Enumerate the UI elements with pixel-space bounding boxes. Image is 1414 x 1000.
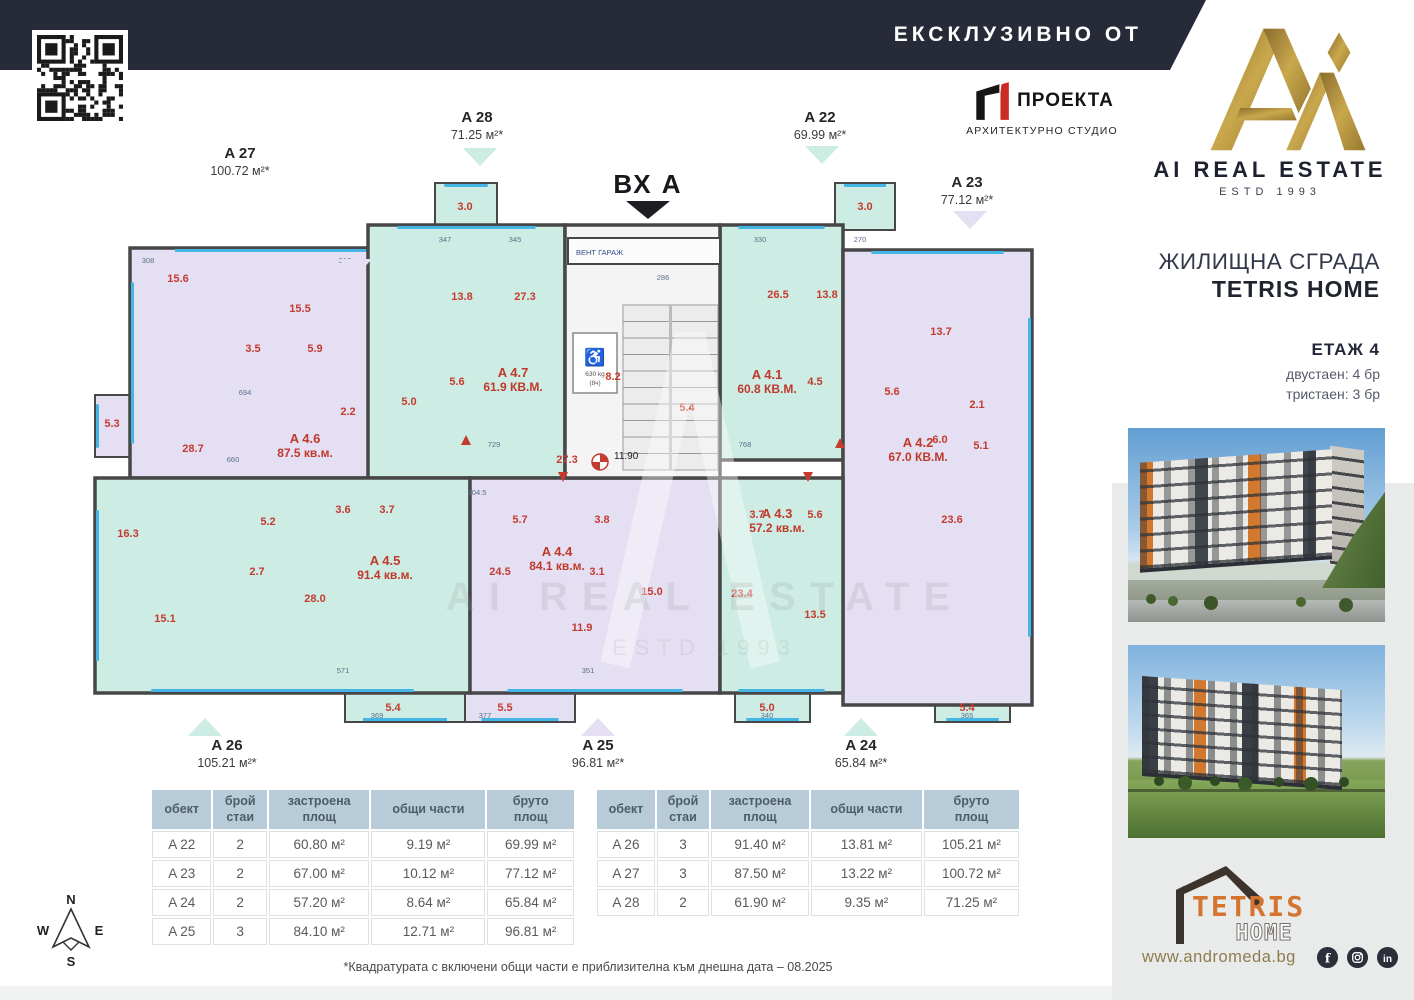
table-cell: 10.12 м² xyxy=(371,860,485,887)
room-size-label: 3.7 xyxy=(379,504,394,516)
room-size-label: 3.0 xyxy=(457,201,472,213)
table-cell: 8.64 м² xyxy=(371,889,485,916)
entrance-label: ВХ А xyxy=(613,169,682,199)
room-size-label: 5.2 xyxy=(260,516,275,528)
callout-unit: A 25 xyxy=(582,737,613,754)
table-cell: 2 xyxy=(213,860,267,887)
table-cell: 57.20 м² xyxy=(269,889,369,916)
room-size-label: 23.6 xyxy=(941,514,962,526)
table-cell: 77.12 м² xyxy=(487,860,574,887)
room-size-label: 3.7 xyxy=(749,509,764,521)
callout-unit: A 27 xyxy=(224,145,255,162)
dimension-label: 347 xyxy=(439,235,452,244)
callout-area: 65.84 м²* xyxy=(835,756,888,770)
room-size-label: 28.0 xyxy=(304,593,325,605)
dimension-label: 660 xyxy=(227,455,240,464)
svg-text:HOME: HOME xyxy=(1236,921,1293,946)
room-size-label: 5.6 xyxy=(807,509,822,521)
dimension-label: 729 xyxy=(488,440,501,449)
room-size-label: 5.4 xyxy=(385,702,401,714)
table-cell: A 22 xyxy=(152,831,211,858)
room-size-label: 5.5 xyxy=(497,702,512,714)
watermark-text: ESTD 1993 xyxy=(612,635,798,660)
room-size-label: 5.3 xyxy=(104,418,119,430)
room-size-label: 3.8 xyxy=(594,514,609,526)
callout-pointer xyxy=(581,718,615,736)
room-size-label: 5.1 xyxy=(973,440,988,452)
room-size-label: 3.6 xyxy=(335,504,350,516)
dimension-label: 308 xyxy=(142,256,155,265)
apartment-size: 61.9 КВ.М. xyxy=(483,380,542,394)
callout-pointer xyxy=(805,146,839,164)
callout-pointer xyxy=(188,718,222,736)
exclusive-banner-text: ЕКСКЛУЗИВНО ОТ xyxy=(894,0,1142,70)
callout-pointer xyxy=(953,211,987,229)
callout-unit: A 22 xyxy=(804,109,835,126)
website-link[interactable]: www.andromeda.bg xyxy=(1142,948,1296,967)
table-cell: 12.71 м² xyxy=(371,918,485,945)
tetris-home-logo: TETRIS HOME xyxy=(1168,860,1344,948)
apartment-number: A 4.7 xyxy=(498,365,529,380)
building-render-1 xyxy=(1128,428,1385,622)
room-size-label: 8.2 xyxy=(605,371,620,383)
wheelchair-icon: ♿ xyxy=(584,347,605,367)
table-cell: 61.90 м² xyxy=(711,889,809,916)
dimension-label: 377 xyxy=(479,711,492,720)
brand-title: AI REAL ESTATE xyxy=(1136,157,1404,183)
dimension-label: 694 xyxy=(239,388,252,397)
table-cell: 65.84 м² xyxy=(487,889,574,916)
stat-three-room: тристаен: 3 бр xyxy=(1140,386,1380,402)
compass-rose: NWES xyxy=(36,893,106,971)
table-cell: A 23 xyxy=(152,860,211,887)
exclusive-banner: ЕКСКЛУЗИВНО ОТ xyxy=(0,0,1210,70)
room-size-label: 6.0 xyxy=(932,434,947,446)
apartment-number: A 4.4 xyxy=(542,544,573,559)
callout-area: 69.99 м²* xyxy=(794,128,847,142)
table-cell: 84.10 м² xyxy=(269,918,369,945)
apartment-area xyxy=(843,250,1032,705)
room-size-label: 27.3 xyxy=(556,454,577,466)
balcony-area xyxy=(345,693,465,722)
table-cell: A 24 xyxy=(152,889,211,916)
table-cell: A 25 xyxy=(152,918,211,945)
vent-label: ВЕНТ ГАРАЖ xyxy=(576,248,623,257)
table-cell: 60.80 м² xyxy=(269,831,369,858)
table-row: A 24257.20 м²8.64 м²65.84 м² xyxy=(152,889,574,916)
table-cell: 87.50 м² xyxy=(711,860,809,887)
apartment-number: A 4.3 xyxy=(762,506,793,521)
table-cell: 69.99 м² xyxy=(487,831,574,858)
apartment-size: 67.0 КВ.М. xyxy=(888,450,947,464)
room-size-label: 5.6 xyxy=(449,376,464,388)
room-size-label: 4.5 xyxy=(807,376,822,388)
compass-n: N xyxy=(66,893,75,907)
room-size-label: 5.9 xyxy=(307,343,322,355)
svg-text:in: in xyxy=(1383,954,1392,965)
table-cell: 13.81 м² xyxy=(811,831,922,858)
dimension-label: 351 xyxy=(582,666,595,675)
table-row: A 23267.00 м²10.12 м²77.12 м² xyxy=(152,860,574,887)
table-cell: 3 xyxy=(657,860,709,887)
stat-two-room: двустаен: 4 бр xyxy=(1140,366,1380,382)
callout-unit: A 28 xyxy=(461,109,492,126)
table-cell: 13.22 м² xyxy=(811,860,922,887)
svg-text:630 kg: 630 kg xyxy=(585,371,605,378)
column-header: бруто площ xyxy=(487,790,574,829)
building-name: TETRIS HOME xyxy=(1060,276,1380,303)
apartment-size: 91.4 кв.м. xyxy=(357,568,413,582)
brochure-page: ЕКСКЛУЗИВНО ОТ ПРОЕКТА АРХИТЕКТУРНО СТУД… xyxy=(0,0,1414,1000)
floor-label: ЕТАЖ 4 xyxy=(1180,340,1380,360)
facebook-icon[interactable]: f xyxy=(1316,946,1339,969)
table-cell: A 26 xyxy=(597,831,655,858)
callout-unit: A 26 xyxy=(211,737,242,754)
apartment-size: 84.1 кв.м. xyxy=(529,559,585,573)
room-size-label: 16.3 xyxy=(117,528,138,540)
building-title: ЖИЛИЩНА СГРАДА xyxy=(1060,249,1380,275)
table-row: A 22260.80 м²9.19 м²69.99 м² xyxy=(152,831,574,858)
footnote: *Квадратурата с включени общи части е пр… xyxy=(148,960,1028,974)
compass-e: E xyxy=(95,923,104,938)
callout-area: 96.81 м²* xyxy=(572,756,625,770)
dimension-label: 286 xyxy=(657,273,670,282)
table-cell: A 27 xyxy=(597,860,655,887)
table-cell: 9.19 м² xyxy=(371,831,485,858)
compass-w: W xyxy=(37,923,50,938)
room-size-label: 26.5 xyxy=(767,289,788,301)
entrance-arrow-icon xyxy=(626,201,670,219)
building-render-2 xyxy=(1128,645,1385,838)
apartment-number: A 4.2 xyxy=(903,435,934,450)
table-cell: 9.35 м² xyxy=(811,889,922,916)
room-size-label: 13.8 xyxy=(451,291,472,303)
footer-strip xyxy=(0,986,1112,1000)
callout-unit: A 23 xyxy=(951,174,982,191)
apartment-size: 60.8 КВ.М. xyxy=(737,382,796,396)
dimension-label: 365 xyxy=(961,711,974,720)
dimension-label: 571 xyxy=(337,666,350,675)
table-cell: 3 xyxy=(213,918,267,945)
dimension-label: 369 xyxy=(371,711,384,720)
callout-pointer xyxy=(463,148,497,166)
column-header: застроена площ xyxy=(269,790,369,829)
apartment-number: A 4.5 xyxy=(370,553,401,568)
watermark-text: AI REAL ESTATE xyxy=(446,575,964,619)
callout-area: 105.21 м²* xyxy=(197,756,256,770)
room-size-label: 15.6 xyxy=(167,273,188,285)
social-icons: f in xyxy=(1316,946,1399,969)
callout-pointer xyxy=(844,718,878,736)
column-header: обект xyxy=(152,790,211,829)
dimension-label: 345 xyxy=(509,235,522,244)
dimension-label: 340 xyxy=(761,711,774,720)
instagram-icon[interactable] xyxy=(1346,946,1369,969)
table-row: A 27387.50 м²13.22 м²100.72 м² xyxy=(597,860,1019,887)
column-header: брой стаи xyxy=(657,790,709,829)
table-row: A 26391.40 м²13.81 м²105.21 м² xyxy=(597,831,1019,858)
column-header: бруто площ xyxy=(924,790,1019,829)
apartment-size: 57.2 кв.м. xyxy=(749,521,805,535)
callout-area: 77.12 м²* xyxy=(941,193,994,207)
room-size-label: 2.7 xyxy=(249,566,264,578)
table-row: A 28261.90 м²9.35 м²71.25 м² xyxy=(597,889,1019,916)
table-cell: 3 xyxy=(657,831,709,858)
room-size-label: 3.0 xyxy=(857,201,872,213)
room-size-label: 15.5 xyxy=(289,303,310,315)
room-size-label: 11.9 xyxy=(572,622,593,634)
table-cell: 71.25 м² xyxy=(924,889,1019,916)
dimension-label: 304.5 xyxy=(468,488,487,497)
room-size-label: 5.0 xyxy=(401,396,416,408)
room-size-label: 3.5 xyxy=(245,343,260,355)
room-size-label: 15.1 xyxy=(154,613,175,625)
room-size-label: 27.3 xyxy=(514,291,535,303)
table-cell: 2 xyxy=(657,889,709,916)
room-size-label: 5.7 xyxy=(512,514,527,526)
column-header: обект xyxy=(597,790,655,829)
callout-area: 100.72 м²* xyxy=(210,164,269,178)
room-size-label: 28.7 xyxy=(182,443,203,455)
apartment-number: A 4.6 xyxy=(290,431,321,446)
table-cell: 105.21 м² xyxy=(924,831,1019,858)
callout-area: 71.25 м²* xyxy=(451,128,504,142)
dimension-label: 330 xyxy=(754,235,767,244)
linkedin-icon[interactable]: in xyxy=(1376,946,1399,969)
apartment-size: 87.5 кв.м. xyxy=(277,446,333,460)
column-header: общи части xyxy=(371,790,485,829)
table-cell: 96.81 м² xyxy=(487,918,574,945)
column-header: застроена площ xyxy=(711,790,809,829)
room-size-label: 2.2 xyxy=(340,406,355,418)
column-header: брой стаи xyxy=(213,790,267,829)
level-value: 11.90 xyxy=(614,451,639,462)
table-cell: 2 xyxy=(213,889,267,916)
area-table-2: обектброй стаизастроена площобщи частибр… xyxy=(595,788,1021,918)
apartment-area xyxy=(95,478,470,693)
apartment-number: A 4.1 xyxy=(752,367,783,382)
room-size-label: 13.8 xyxy=(816,289,837,301)
dimension-label: 768 xyxy=(739,440,752,449)
callout-unit: A 24 xyxy=(845,737,877,754)
table-cell: 91.40 м² xyxy=(711,831,809,858)
brand-estd: ESTD 1993 xyxy=(1136,186,1404,198)
column-header: общи части xyxy=(811,790,922,829)
svg-text:TETRIS: TETRIS xyxy=(1192,890,1305,923)
room-size-label: 13.7 xyxy=(930,326,951,338)
table-cell: 67.00 м² xyxy=(269,860,369,887)
floor-plan: ВЕНТ ГАРАЖ♿630 kg(8ч)A 4.687.5 кв.м.A 4.… xyxy=(15,105,1120,795)
table-cell: 100.72 м² xyxy=(924,860,1019,887)
apartment-area xyxy=(720,225,843,460)
compass-s: S xyxy=(67,954,76,969)
dimension-label: 270 xyxy=(854,235,867,244)
room-size-label: 5.6 xyxy=(884,386,899,398)
table-cell: A 28 xyxy=(597,889,655,916)
area-table-1: обектброй стаизастроена площобщи частибр… xyxy=(150,788,576,947)
table-cell: 2 xyxy=(213,831,267,858)
table-row: A 25384.10 м²12.71 м²96.81 м² xyxy=(152,918,574,945)
svg-text:(8ч): (8ч) xyxy=(589,380,600,387)
room-size-label: 2.1 xyxy=(969,399,984,411)
ai-real-estate-logo-icon xyxy=(1208,20,1368,152)
